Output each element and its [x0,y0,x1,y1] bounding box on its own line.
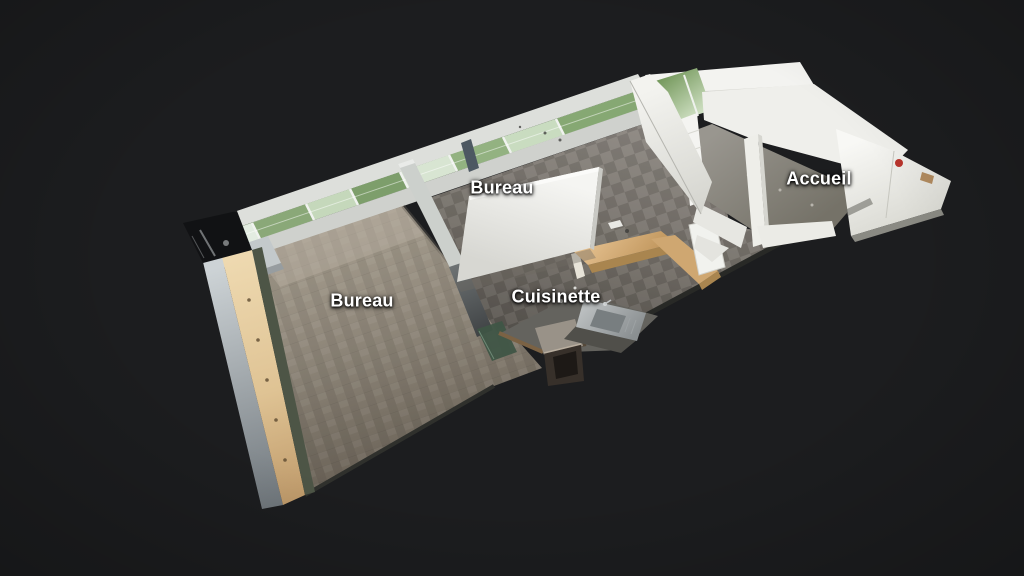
room-label-accueil[interactable]: Accueil [786,169,851,190]
extinguisher-marker [895,159,903,167]
room-label-bureau-window[interactable]: Bureau [470,178,533,199]
room-label-cuisinette[interactable]: Cuisinette [511,287,600,308]
room-label-bureau-main[interactable]: Bureau [330,291,393,312]
3d-viewport[interactable]: Bureau Bureau Cuisinette Accueil [0,0,1024,576]
